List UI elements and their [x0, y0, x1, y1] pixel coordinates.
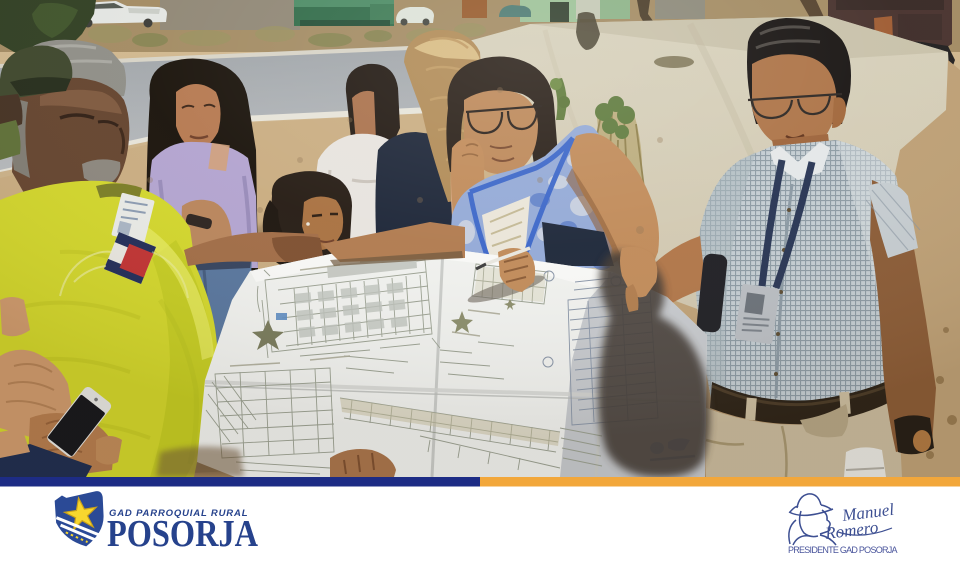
svg-text:PRESIDENTE GAD POSORJA: PRESIDENTE GAD POSORJA [788, 545, 898, 555]
svg-text:POSORJA: POSORJA [107, 513, 258, 555]
